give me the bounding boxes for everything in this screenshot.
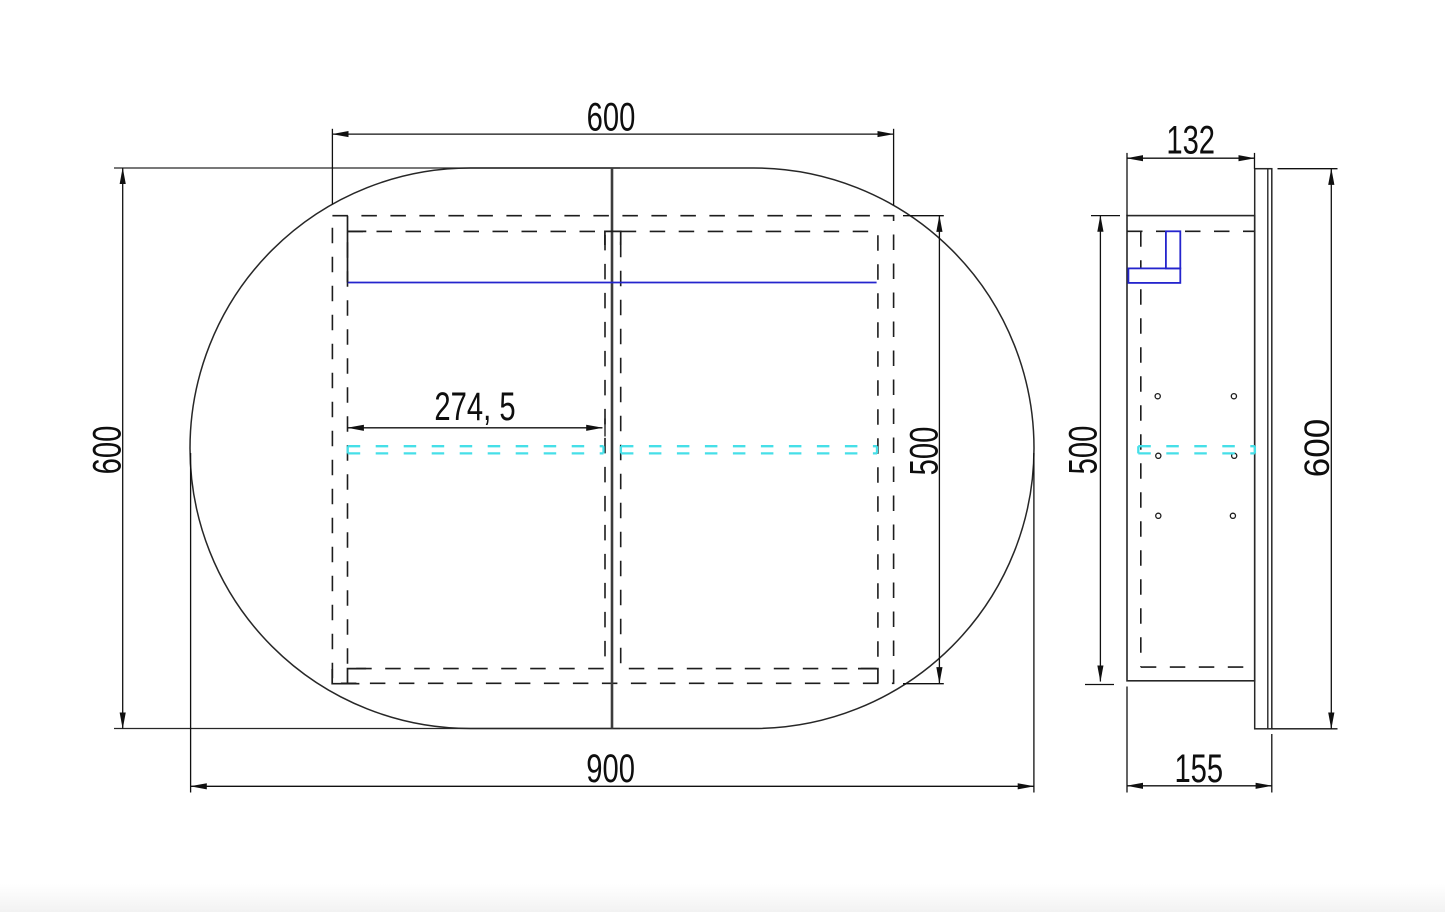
svg-text:155: 155 bbox=[1174, 747, 1223, 792]
svg-text:600: 600 bbox=[1298, 419, 1337, 477]
svg-text:274, 5: 274, 5 bbox=[434, 384, 515, 429]
svg-text:600: 600 bbox=[85, 426, 130, 475]
svg-text:900: 900 bbox=[586, 747, 635, 792]
svg-text:600: 600 bbox=[587, 95, 636, 140]
svg-text:500: 500 bbox=[1061, 426, 1106, 475]
svg-text:132: 132 bbox=[1166, 118, 1215, 163]
svg-text:500: 500 bbox=[902, 427, 947, 476]
